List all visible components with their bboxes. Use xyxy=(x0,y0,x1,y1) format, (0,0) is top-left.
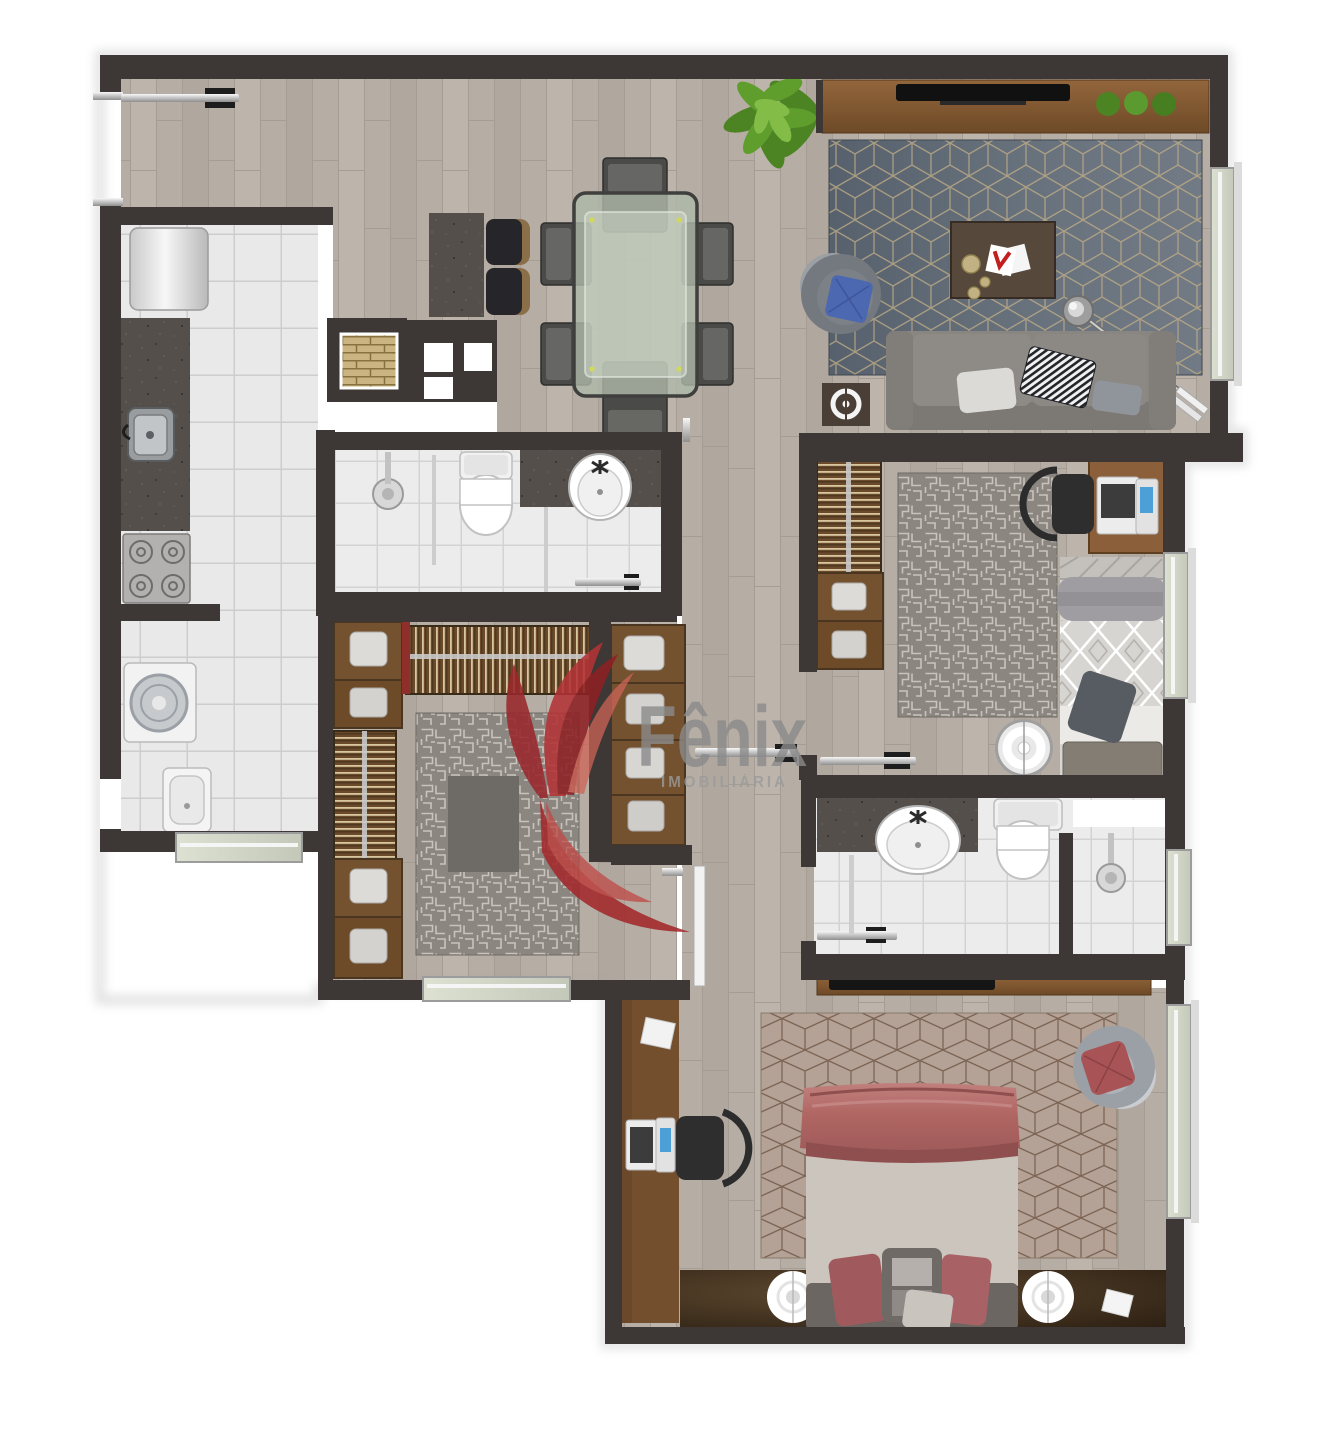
svg-text:IMOBILIÁRIA: IMOBILIÁRIA xyxy=(661,774,788,791)
svg-text:Fênix: Fênix xyxy=(637,689,807,785)
